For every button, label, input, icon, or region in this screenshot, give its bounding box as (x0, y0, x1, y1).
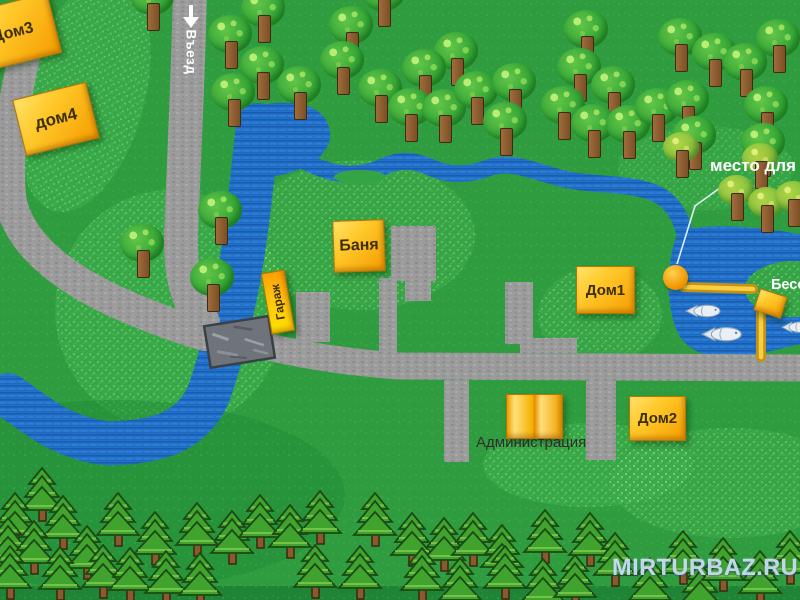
terrain-layer (0, 0, 800, 600)
watermark: MIRTURBAZ.RU (612, 554, 798, 581)
building-label: Дом2 (638, 410, 677, 427)
building-dom1: Дом1 (576, 266, 635, 314)
site-map: Дом3 дом4 Баня Гараж Дом1 Дом2 Администр… (0, 0, 800, 600)
entrance-label: Въезд (184, 30, 199, 75)
gray-building (391, 226, 436, 281)
down-arrow-icon (183, 5, 199, 29)
fishing-spot-marker (663, 265, 688, 290)
gazebo-label: Беседка (771, 277, 800, 293)
patio (296, 292, 330, 342)
building-label: Дом1 (586, 282, 625, 299)
building-banya: Баня (332, 219, 386, 273)
stream-island (334, 170, 386, 184)
fishing-spot-label: место для (710, 156, 796, 176)
building-label: Гараж (268, 283, 288, 321)
building-label: Баня (339, 236, 379, 255)
bridge (204, 316, 275, 368)
building-label: дом4 (33, 104, 80, 134)
entrance-marker: Въезд (168, 0, 214, 90)
administration-caption: Администрация (476, 434, 586, 451)
administration-building (506, 394, 563, 439)
building-label: Дом3 (0, 19, 35, 47)
building-dom2: Дом2 (629, 396, 686, 441)
